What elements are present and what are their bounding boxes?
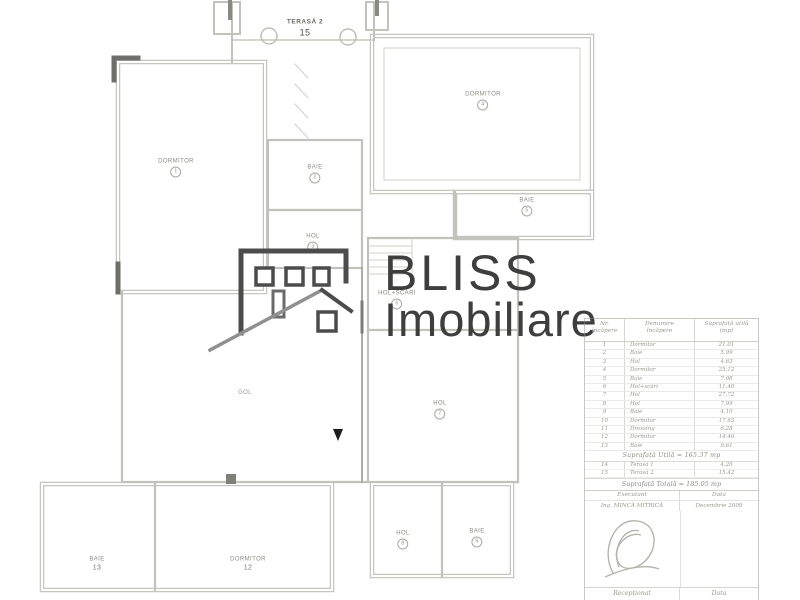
header-denumire: Denumire încăpere <box>625 319 695 341</box>
table-row: 14Terasă 14.26 <box>585 462 758 470</box>
executant-date: Decembrie 2009 <box>680 501 758 511</box>
scanned-floorplan-page: TERASĂ 2 15 DORMITOR 1 BAIE 2 HOL 3 DORM… <box>0 0 800 600</box>
terasa-rows: 14Terasă 14.2615Terasă 215.42 <box>585 462 758 478</box>
executant-value-row: Ing. MINCĂ MITRICĂ Decembrie 2009 <box>585 501 758 511</box>
signature-scribble <box>585 511 680 587</box>
room-label-baie-2: BAIE 2 <box>307 165 322 184</box>
header-suprafata: Suprafață utilă (mp) <box>695 319 758 341</box>
house-icon <box>208 248 358 358</box>
room-label-baie-5: BAIE 5 <box>519 198 534 217</box>
room-label-hol-7: HOL 7 <box>433 401 447 420</box>
arrow-marker <box>333 429 343 441</box>
area-table-rows: 1Dormitor21.012Baie5.993Hol4.634Dormitor… <box>585 342 758 451</box>
logo-wordmark: BLISS Imobiliare <box>384 250 598 343</box>
table-row: 2Baie5.99 <box>585 350 758 358</box>
executant-label: Executant <box>585 491 680 500</box>
logo-text-imobiliare: Imobiliare <box>384 296 598 343</box>
signature-area <box>585 511 758 587</box>
receptionat-row: Recepționat Data <box>585 587 758 600</box>
table-row: 6Hol+scări11.40 <box>585 384 758 392</box>
room-label-gol: GOL <box>238 390 252 396</box>
table-row: 8Hol7.99 <box>585 401 758 409</box>
executant-name: Ing. MINCĂ MITRICĂ <box>585 501 680 511</box>
total-suprafata: Suprafață Totală = 185.05 mp <box>585 478 758 491</box>
table-row: 5Baie7.08 <box>585 376 758 384</box>
area-table-header: Nr. încăpere Denumire încăpere Suprafață… <box>585 319 758 342</box>
room-label-baie-9: BAIE 9 <box>469 529 484 548</box>
logo-text-bliss: BLISS <box>384 250 598 296</box>
receptionat-data-label: Data <box>680 588 758 600</box>
table-row: 15Terasă 215.42 <box>585 470 758 478</box>
subtotal-utila: Suprafață Utilă = 165.37 mp <box>585 451 758 462</box>
room-label-hol-8: HOL 8 <box>396 531 410 550</box>
table-row: 9Baie4.10 <box>585 409 758 417</box>
table-row: 1Dormitor21.01 <box>585 342 758 350</box>
bliss-logo: BLISS Imobiliare <box>208 248 598 358</box>
header-nr: Nr. încăpere <box>585 319 625 341</box>
room-label-terasa-2: TERASĂ 2 15 <box>287 19 323 37</box>
table-row: 7Hol27.72 <box>585 392 758 400</box>
room-label-dormitor-12: DORMITOR 12 <box>230 557 266 572</box>
table-row: 3Hol4.63 <box>585 359 758 367</box>
receptionat-label: Recepționat <box>585 588 680 600</box>
table-row: 4Dormitor25.12 <box>585 367 758 375</box>
data-label: Data <box>680 491 758 500</box>
table-row: 10Dormitor17.63 <box>585 418 758 426</box>
table-row: 11Dressing6.28 <box>585 426 758 434</box>
area-table: Nr. încăpere Denumire încăpere Suprafață… <box>584 318 759 600</box>
room-label-dormitor-4: DORMITOR 4 <box>465 92 501 111</box>
signature-divider <box>680 511 681 587</box>
table-row: 12Dormitor14.46 <box>585 434 758 442</box>
table-row: 13Baie9.61 <box>585 443 758 451</box>
room-label-baie-13: BAIE 13 <box>89 557 104 572</box>
executant-header-row: Executant Data <box>585 491 758 501</box>
room-label-dormitor-1: DORMITOR 1 <box>158 159 194 178</box>
